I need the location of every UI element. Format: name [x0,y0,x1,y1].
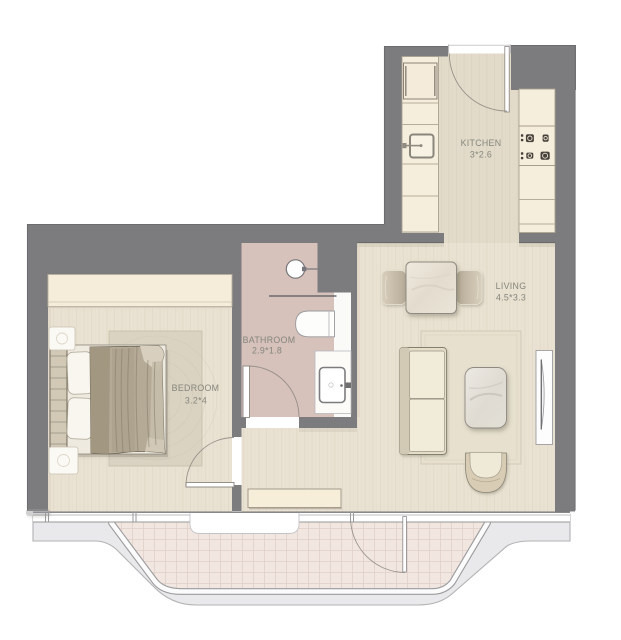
svg-text:2.9*1.8: 2.9*1.8 [252,346,282,356]
svg-text:BEDROOM: BEDROOM [172,383,220,393]
svg-text:KITCHEN: KITCHEN [461,138,502,148]
svg-text:4.5*3.3: 4.5*3.3 [496,293,526,303]
svg-text:BATHROOM: BATHROOM [243,335,296,345]
svg-text:3*2.6: 3*2.6 [470,150,492,160]
svg-text:3.2*4: 3.2*4 [185,396,207,406]
svg-text:LIVING: LIVING [496,281,527,291]
